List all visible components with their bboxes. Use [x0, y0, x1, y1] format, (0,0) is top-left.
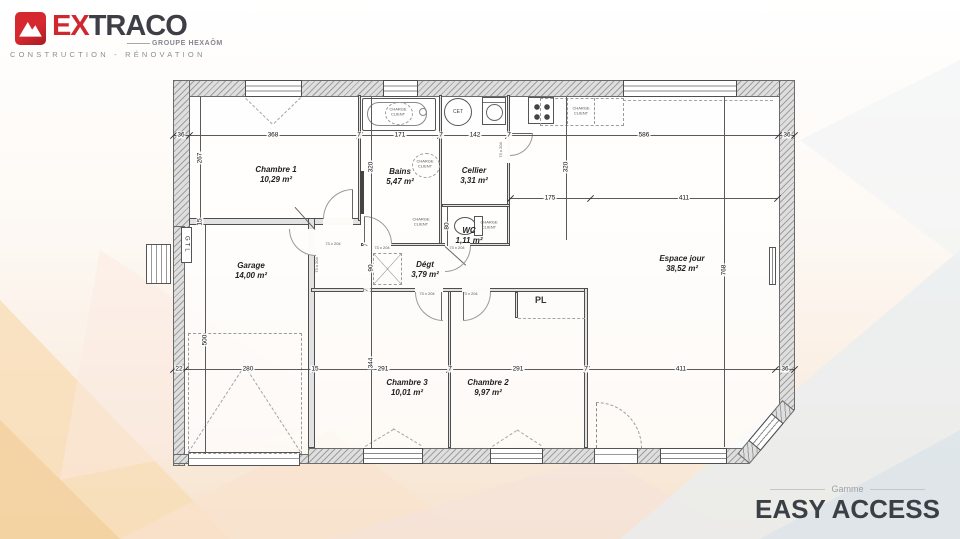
door-size-label: 73 x 204: [320, 242, 346, 247]
dimension-label: 7: [364, 243, 371, 248]
door-opening: [323, 218, 353, 225]
dimension-label: 267: [197, 152, 204, 165]
dimension-line: [173, 369, 795, 370]
dimension-label: 291: [512, 366, 525, 373]
room-label-chambre3: Chambre 310,01 m²: [386, 378, 427, 397]
range-label-row: Gamme: [745, 484, 950, 494]
wall: [779, 80, 795, 410]
dimension-label: 411: [678, 195, 690, 202]
dimension-label: 36: [780, 366, 789, 373]
dimension-label: 15: [310, 366, 319, 373]
bay-window: [623, 80, 737, 97]
brand-tagline: CONSTRUCTION - RÉNOVATION: [10, 50, 206, 59]
water-heater-label: CET: [453, 110, 463, 115]
room-label-wc: WC1,11 m²: [456, 226, 483, 245]
room-label-chambre2: Chambre 29,97 m²: [467, 378, 508, 397]
room-label-garage: Garage14,00 m²: [235, 261, 267, 280]
dimension-label: 291: [377, 366, 390, 373]
dimension-label: 171: [394, 132, 407, 139]
closet-front: [518, 318, 585, 319]
dimension-label: 320: [368, 161, 375, 174]
client-charge-label: CHARGE CLIENT: [480, 221, 498, 230]
garage-door: [188, 452, 300, 466]
client-charge-label: CHARGE CLIENT: [412, 218, 430, 227]
dimension-label: 411: [675, 366, 687, 373]
dimension-label: 768: [721, 264, 728, 277]
dimension-label: 36: [176, 132, 185, 139]
dimension-label: 7: [356, 132, 362, 139]
wall: [442, 204, 510, 207]
dimension-label: 80: [444, 221, 451, 230]
wall: [515, 292, 518, 318]
bathtub-drain: [419, 108, 427, 116]
client-charge-label: CHARGE CLIENT: [572, 107, 590, 116]
dimension-label: 368: [267, 132, 280, 139]
door-size-label: 73 x 204: [315, 257, 320, 272]
dimension-label: 7: [364, 288, 371, 293]
room-label-degt: Dégt3,79 m²: [411, 260, 439, 279]
kitchen-counter-divider: [567, 98, 568, 124]
room-label-bains: Bains5,47 m²: [386, 167, 414, 186]
page: EXTRACO GROUPE HEXAŌM CONSTRUCTION - RÉN…: [0, 0, 960, 539]
entrance-door: [594, 448, 638, 464]
dimension-label: 142: [469, 132, 482, 139]
brand-name-suffix: TRACO: [89, 10, 187, 42]
range-name: EASY ACCESS: [745, 495, 950, 523]
washing-machine-drum: [486, 104, 503, 121]
shower-zone: [373, 253, 402, 285]
dimension-label: 586: [638, 132, 651, 139]
door-size-label: 73 x 204: [499, 142, 504, 157]
door-size-label: 73 x 204: [369, 246, 395, 251]
range-block: Gamme EASY ACCESS: [745, 484, 950, 523]
divider: [770, 489, 825, 490]
dimension-label: 500: [202, 334, 209, 347]
door-size-label: 73 x 204: [457, 292, 483, 297]
brand-name-prefix: EX: [52, 10, 89, 42]
client-charge-label: CHARGE CLIENT: [416, 160, 434, 169]
water-heater: CET: [444, 98, 472, 126]
room-label-chambre1: Chambre 110,29 m²: [255, 165, 296, 184]
client-charge-label: CHARGE CLIENT: [389, 108, 407, 117]
door-size-label: 73 x 204: [444, 246, 470, 251]
door-size-label: 73 x 204: [414, 292, 440, 297]
mountain-icon: [17, 15, 44, 42]
dimension-label: 7: [583, 366, 589, 373]
wall: [173, 80, 190, 228]
room-label-cellier: Cellier3,31 m²: [460, 166, 488, 185]
brand-name: EXTRACO: [52, 11, 187, 42]
dimension-label: 7: [447, 366, 453, 373]
bay-window-track: [623, 100, 773, 101]
wall: [507, 95, 510, 246]
divider: [127, 43, 150, 44]
window: [660, 448, 727, 464]
window: [490, 448, 543, 464]
window: [245, 80, 302, 97]
gtl-label: GTL: [184, 236, 190, 254]
divider: [870, 489, 925, 490]
radiator: [769, 247, 776, 285]
floor-plan: CHARGE CLIENT CET CHARGE CLIENT CHARGE C…: [173, 78, 797, 470]
gtl-box: GTL: [181, 227, 192, 263]
dimension-label: 22: [174, 366, 183, 373]
range-label: Gamme: [831, 484, 863, 494]
dimension-label: 320: [563, 161, 570, 174]
dimension-label: 175: [544, 195, 557, 202]
radiator: [360, 171, 364, 214]
room-label-espace-jour: Espace jour38,52 m²: [659, 254, 704, 273]
brand-logo: EXTRACO GROUPE HEXAŌM CONSTRUCTION - RÉN…: [10, 10, 240, 62]
closet-label: PL: [535, 295, 547, 305]
dimension-label: 36: [782, 132, 791, 139]
window: [363, 448, 423, 464]
dimension-label: 90: [368, 263, 375, 272]
brand-group: GROUPE HEXAŌM: [152, 40, 223, 48]
dimension-label: 15: [197, 217, 204, 226]
logo-mark: [15, 12, 46, 45]
dimension-label: 344: [368, 357, 375, 370]
dimension-label: 7: [506, 132, 512, 139]
kitchen-counter-divider: [594, 98, 595, 124]
wall: [439, 95, 442, 246]
dimension-label: 7: [438, 132, 444, 139]
electric-meter-box: [146, 244, 171, 284]
dimension-label: 280: [242, 366, 255, 373]
window: [383, 80, 418, 97]
